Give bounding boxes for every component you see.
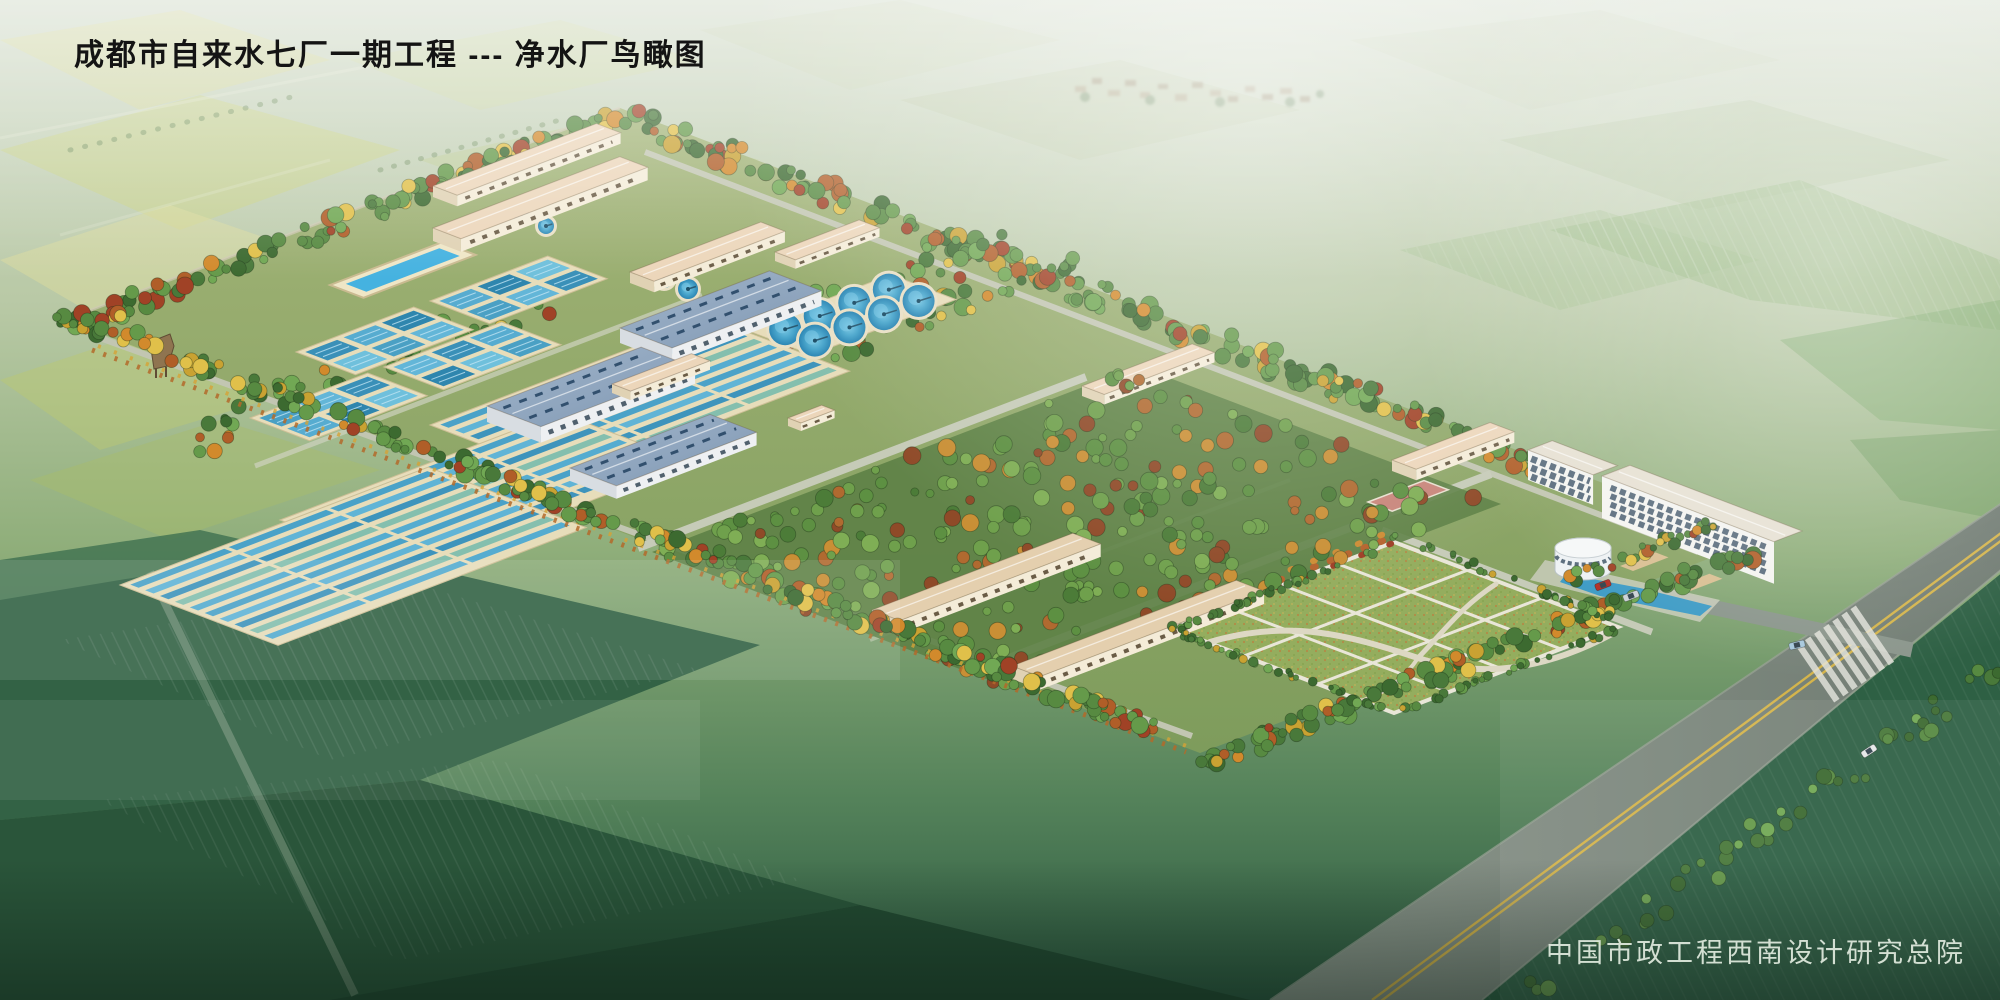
scene-canvas [0, 0, 2000, 1000]
credit-text: 中国市政工程西南设计研究总院 [1546, 931, 1966, 970]
aerial-rendering: 成都市自来水七厂一期工程 --- 净水厂鸟瞰图 中国市政工程西南设计研究总院 [0, 0, 2000, 1000]
title-text: 成都市自来水七厂一期工程 --- 净水厂鸟瞰图 [74, 30, 707, 74]
